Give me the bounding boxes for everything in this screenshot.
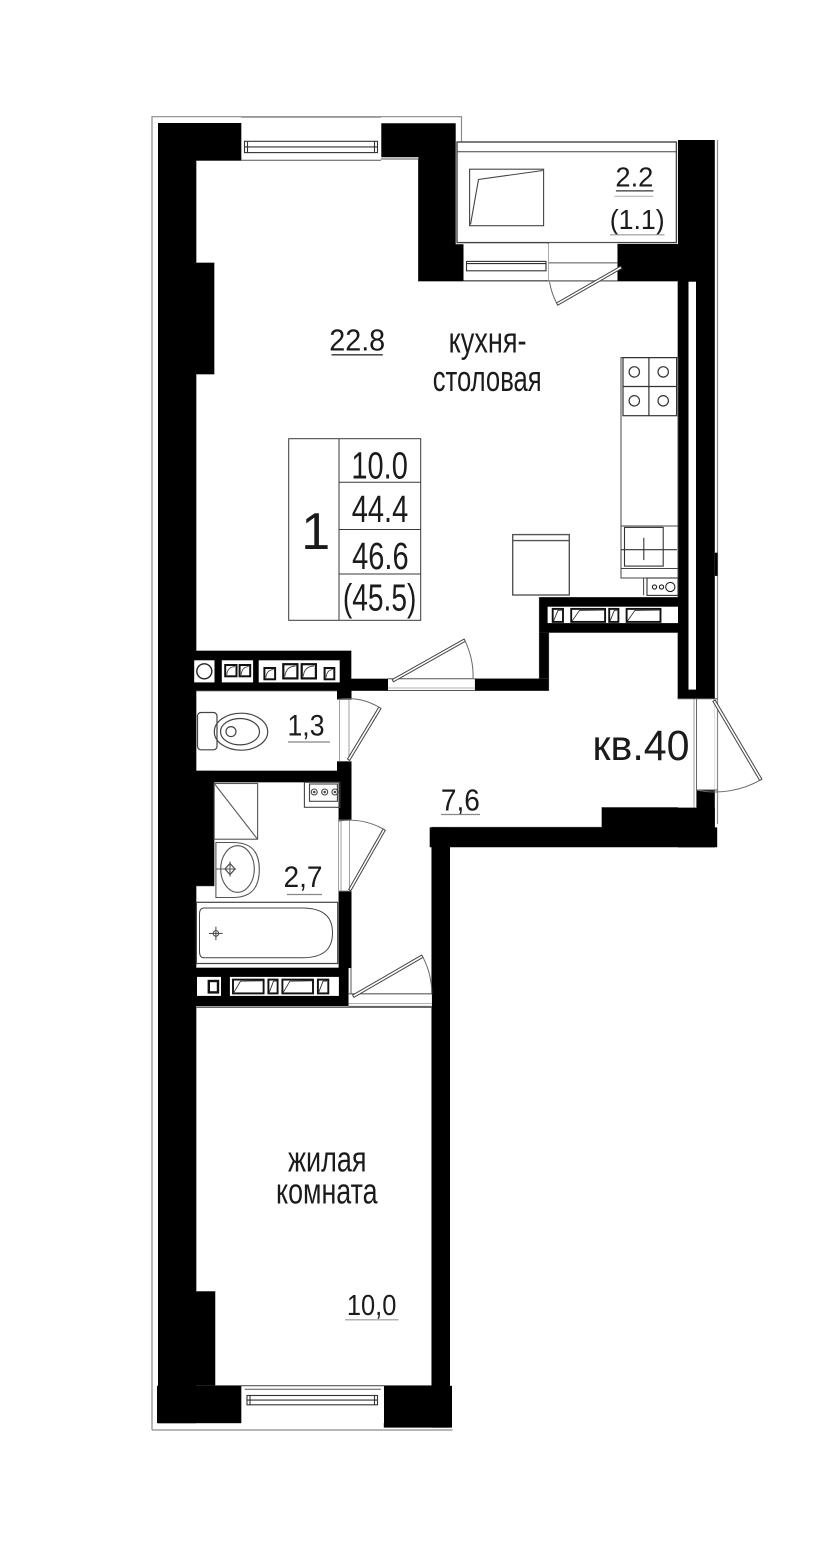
svg-text:столовая: столовая [433, 358, 542, 399]
svg-text:2,7: 2,7 [284, 861, 323, 894]
svg-text:10,0: 10,0 [347, 1290, 397, 1322]
svg-text:44.4: 44.4 [352, 489, 409, 531]
svg-text:7,6: 7,6 [441, 782, 480, 817]
svg-text:10.0: 10.0 [351, 445, 408, 487]
svg-text:1: 1 [301, 503, 330, 561]
svg-text:комната: комната [276, 1171, 378, 1212]
svg-text:кухня-: кухня- [449, 320, 527, 361]
svg-text:(1.1): (1.1) [610, 204, 665, 235]
svg-text:22.8: 22.8 [329, 323, 385, 358]
svg-text:кв.40: кв.40 [593, 722, 690, 770]
svg-text:1,3: 1,3 [288, 709, 325, 742]
svg-text:46.6: 46.6 [352, 536, 409, 578]
svg-text:(45.5): (45.5) [343, 578, 417, 620]
svg-text:2.2: 2.2 [615, 161, 653, 192]
